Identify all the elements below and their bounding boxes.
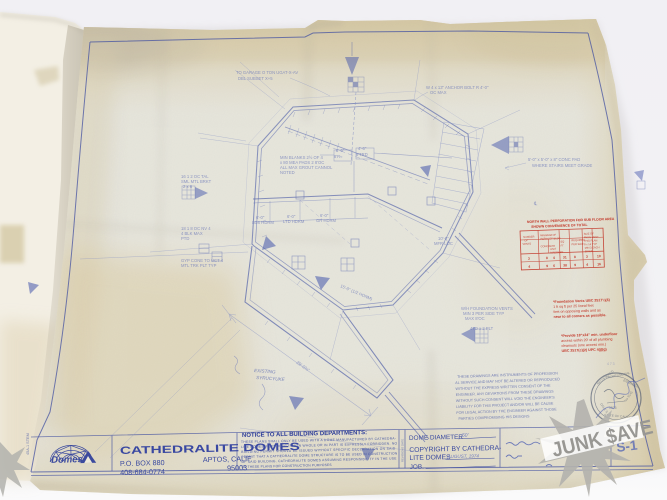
svg-text:JOB.: JOB. bbox=[410, 464, 425, 471]
svg-text:MFR LOC: MFR LOC bbox=[434, 241, 453, 246]
svg-text:VENTS: VENTS bbox=[522, 242, 531, 246]
svg-text:WHERE STAIRS MEET GRADE: WHERE STAIRS MEET GRADE bbox=[532, 163, 593, 168]
svg-text:NUMBER: NUMBER bbox=[523, 234, 534, 238]
svg-text:PER SIDE: PER SIDE bbox=[571, 242, 584, 246]
svg-text:8: 8 bbox=[546, 256, 548, 260]
svg-text:50': 50' bbox=[462, 433, 470, 439]
svg-text:9: 9 bbox=[574, 263, 576, 267]
svg-text:OC MAX: OC MAX bbox=[430, 90, 447, 95]
svg-text:4: 4 bbox=[553, 256, 555, 260]
svg-text:SIDES: SIDES bbox=[585, 249, 593, 253]
svg-text:16: 16 bbox=[597, 262, 601, 266]
svg-text:408-684-0774: 408-684-0774 bbox=[120, 467, 165, 477]
svg-text:SQ: SQ bbox=[560, 239, 564, 243]
svg-text:9'TRD: 9'TRD bbox=[356, 152, 368, 157]
svg-text:DBL SUBSET X+5: DBL SUBSET X+5 bbox=[238, 76, 273, 81]
svg-text:1975: 1975 bbox=[609, 406, 617, 410]
svg-text:LTD HDRM: LTD HDRM bbox=[283, 219, 305, 224]
svg-text:GR HDRM: GR HDRM bbox=[316, 218, 337, 223]
svg-text:6: 6 bbox=[553, 264, 555, 268]
svg-text:4TD x 2 PLT: 4TD x 2 PLT bbox=[470, 326, 494, 331]
svg-text:10: 10 bbox=[597, 254, 601, 258]
svg-text:PTD: PTD bbox=[181, 236, 189, 241]
svg-text:4'-6": 4'-6" bbox=[358, 146, 367, 151]
svg-text:5'-0" x 5'-0" x 8" CONC PAD: 5'-0" x 5'-0" x 8" CONC PAD bbox=[528, 157, 580, 162]
svg-text:2 x 6: 2 x 6 bbox=[183, 184, 193, 189]
svg-text:LITE DOMES: LITE DOMES bbox=[409, 454, 451, 462]
svg-text:NOTED: NOTED bbox=[280, 170, 295, 175]
svg-text:Domes: Domes bbox=[51, 454, 83, 466]
svg-text:TO GARAGE O TON UGAT-X-AV: TO GARAGE O TON UGAT-X-AV bbox=[236, 70, 298, 75]
svg-text:4 7 3: 4 7 3 bbox=[607, 362, 615, 366]
svg-text:8: 8 bbox=[574, 255, 576, 259]
svg-text:45A-1 STEM: 45A-1 STEM bbox=[26, 433, 30, 455]
svg-text:4'-6": 4'-6" bbox=[336, 148, 345, 153]
svg-text:DOME DIAMETER: DOME DIAMETER bbox=[409, 434, 463, 442]
svg-text:MAX 8'OC: MAX 8'OC bbox=[465, 316, 485, 321]
svg-text:REVISIONS DATE: REVISIONS DATE bbox=[401, 439, 405, 462]
svg-text:LDS HDRM: LDS HDRM bbox=[252, 220, 274, 225]
svg-text:MASONRY: MASONRY bbox=[550, 250, 563, 254]
svg-text:9: 9 bbox=[546, 264, 548, 268]
svg-text:8'R≈: 8'R≈ bbox=[334, 154, 343, 159]
svg-text:4: 4 bbox=[586, 263, 588, 267]
svg-text:4: 4 bbox=[528, 265, 530, 269]
svg-text:31: 31 bbox=[563, 255, 567, 259]
svg-text:3: 3 bbox=[528, 257, 530, 261]
svg-text:AUGUST, 1974: AUGUST, 1974 bbox=[446, 453, 479, 459]
svg-text:38: 38 bbox=[563, 263, 567, 267]
svg-text:PERIM OF BLDG: PERIM OF BLDG bbox=[540, 236, 560, 241]
svg-text:MTL TRK PLT TYP: MTL TRK PLT TYP bbox=[181, 263, 217, 268]
svg-text:OF: OF bbox=[524, 238, 528, 242]
svg-text:FT: FT bbox=[560, 243, 564, 247]
svg-text:3: 3 bbox=[586, 255, 588, 259]
